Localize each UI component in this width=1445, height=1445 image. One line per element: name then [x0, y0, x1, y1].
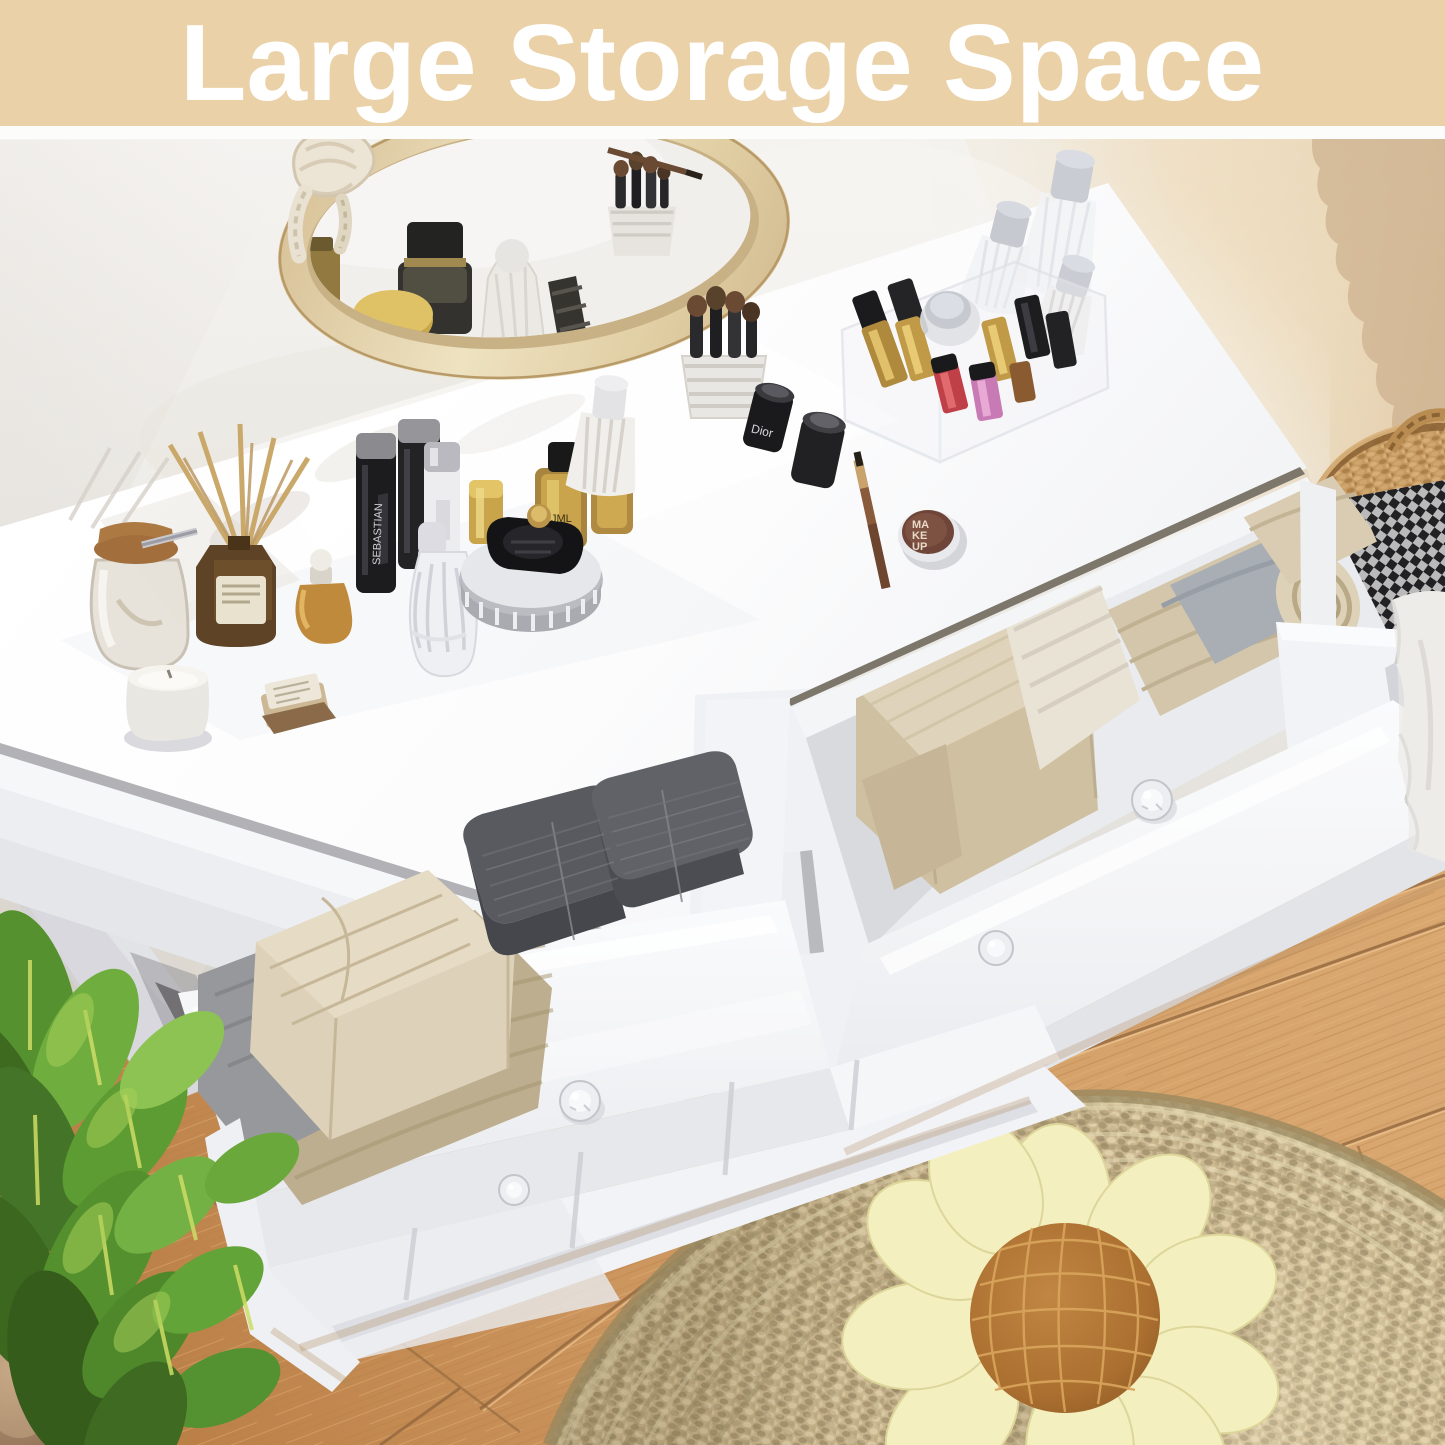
- svg-text:Large Storage Space: Large Storage Space: [180, 2, 1264, 124]
- svg-text:SEBASTIAN: SEBASTIAN: [371, 503, 385, 565]
- svg-text:UP: UP: [912, 541, 927, 553]
